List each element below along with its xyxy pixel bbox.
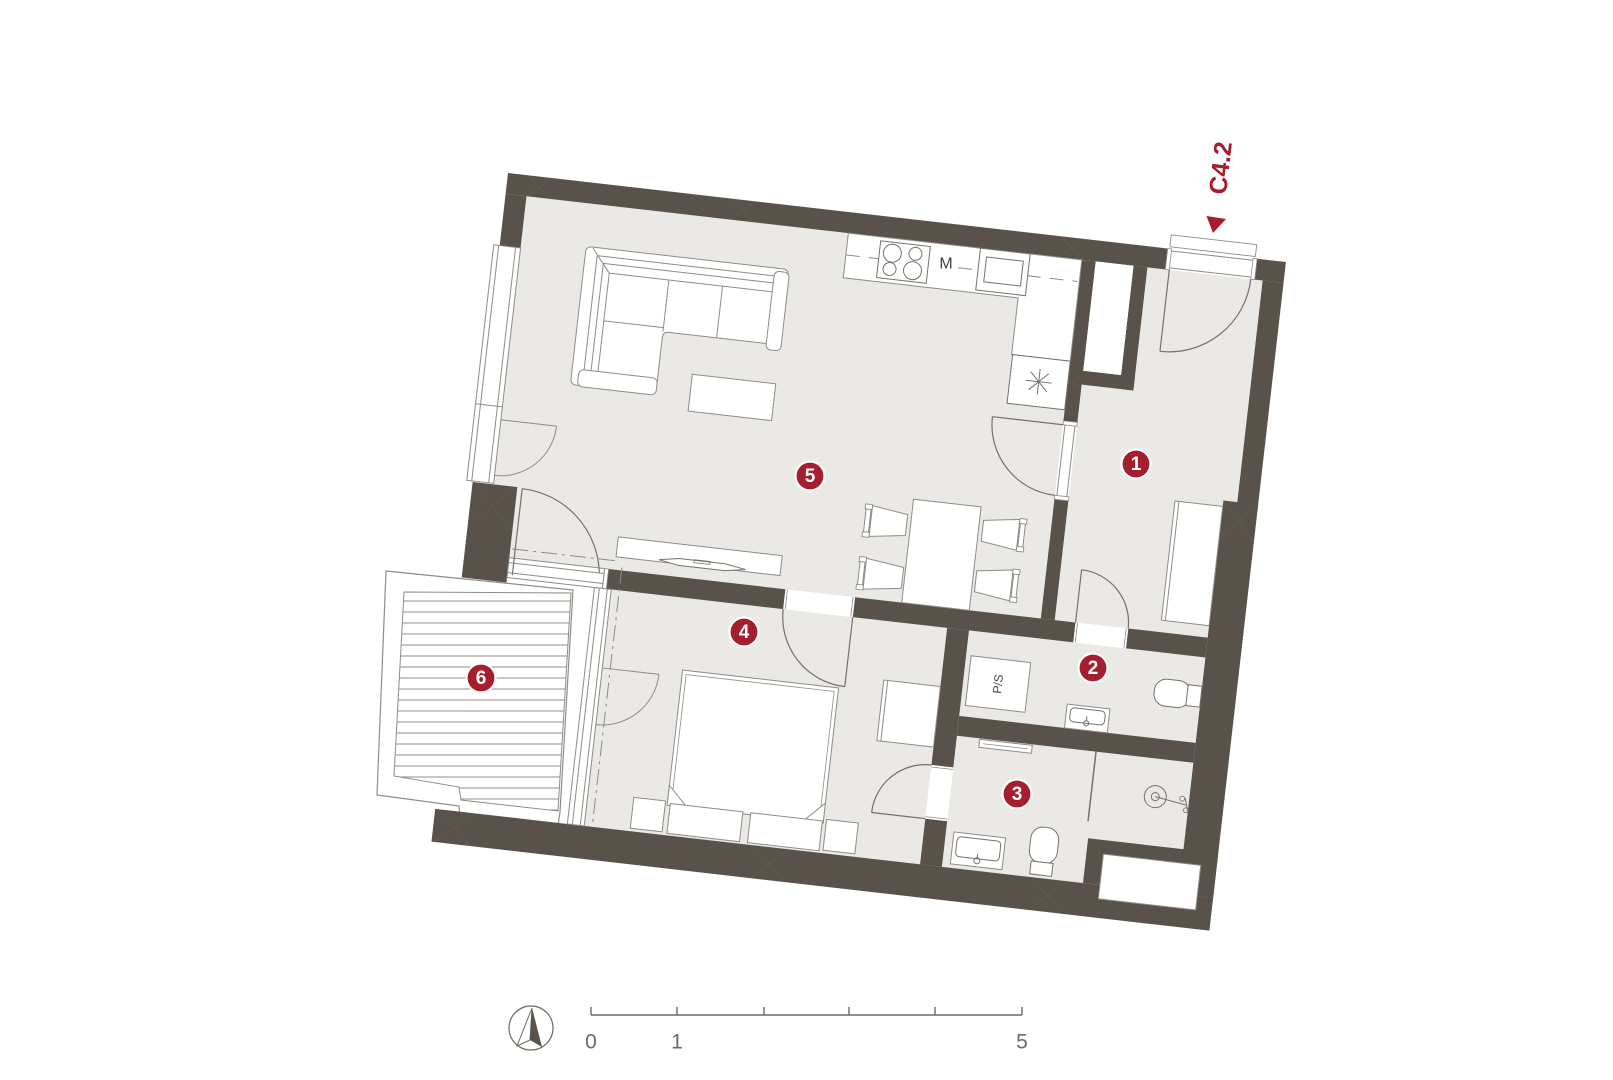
svg-text:5: 5 [1016, 1031, 1028, 1054]
svg-text:6: 6 [476, 668, 487, 689]
svg-text:5: 5 [805, 466, 816, 487]
svg-text:0: 0 [585, 1031, 597, 1054]
svg-text:P/S: P/S [990, 674, 1006, 695]
svg-text:M: M [939, 256, 952, 273]
svg-text:4: 4 [739, 622, 750, 643]
svg-text:1: 1 [1131, 454, 1142, 475]
svg-text:2: 2 [1088, 658, 1099, 679]
svg-text:3: 3 [1012, 784, 1023, 805]
svg-text:C4.2: C4.2 [1204, 140, 1238, 196]
svg-text:1: 1 [671, 1031, 683, 1054]
